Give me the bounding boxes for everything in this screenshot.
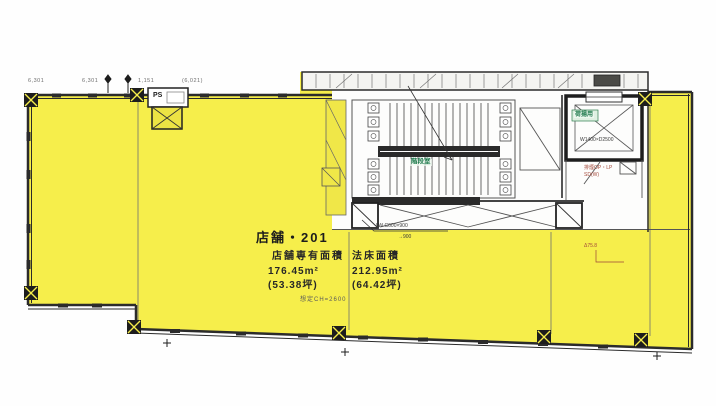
smoke-annotation-1: 排煙OP・LP — [584, 166, 612, 171]
smoke-annotation-2: SD(W) — [584, 173, 599, 178]
exclusive-area-m2: 176.45m² — [268, 267, 319, 277]
floor-plan-page: 店舗・201 店舗専有面積 176.45m² (53.38坪) 想定CH=260… — [0, 0, 716, 406]
unit-title: 店舗・201 — [256, 231, 329, 244]
legal-area-tsubo: (64.42坪) — [352, 281, 402, 291]
dimension-label-1: 6,301 — [28, 79, 44, 85]
legal-area-label: 法床面積 — [352, 252, 400, 262]
dimension-label-3: 1,151 — [138, 79, 154, 85]
elevator-label: 荷揚用 — [574, 112, 594, 118]
core-left-shaft — [322, 100, 346, 215]
stair-room-label: 階段室 — [410, 159, 432, 166]
floor-plan-drawing — [0, 0, 716, 406]
dimension-label-2: 6,301 — [82, 79, 98, 85]
stair-room — [352, 86, 515, 198]
dimension-label-4: (6,021) — [182, 79, 203, 85]
top-corridor-band — [302, 72, 648, 90]
elevator-shaft — [566, 92, 642, 160]
exclusive-area-tsubo: (53.38坪) — [268, 281, 318, 291]
corridor-equipment-box — [594, 75, 620, 86]
elevator-size-note: W1400×D2500 — [580, 138, 614, 143]
beam-annotation-2: →900 — [398, 235, 411, 240]
ps-label: PS — [153, 92, 162, 99]
ceiling-height-note: 想定CH=2600 — [300, 297, 347, 303]
level-annotation: Δ75.8 — [584, 244, 597, 249]
legal-area-m2: 212.95m² — [352, 267, 403, 277]
exclusive-area-label: 店舗専有面積 — [272, 252, 344, 262]
beam-annotation: LW C600×900 — [376, 224, 408, 229]
